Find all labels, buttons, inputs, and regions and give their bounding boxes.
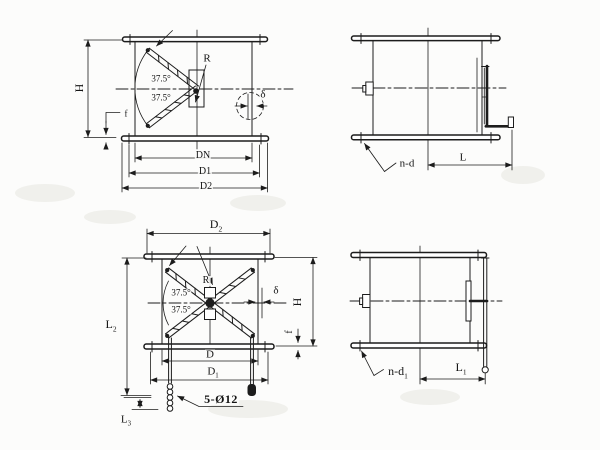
label-delta-sq: δ <box>272 286 279 297</box>
drawing-canvas <box>0 0 600 450</box>
bolt-holes-leader <box>365 144 397 172</box>
view-round-damper-side <box>352 28 514 172</box>
label-radius-sq: R <box>202 276 211 286</box>
label-angle-upper: 37.5° <box>150 75 171 84</box>
label-l: L <box>459 153 468 164</box>
hub-pin <box>205 298 214 307</box>
label-l2: L2 <box>104 318 117 330</box>
label-radius: R <box>202 54 211 65</box>
label-n-d: n-d <box>399 159 416 170</box>
shaft-end-sq <box>363 295 370 308</box>
label-d: D <box>205 350 215 361</box>
label-f-sq: f <box>285 329 295 334</box>
label-d2-sq: D2 <box>209 218 223 230</box>
blade-upper <box>146 48 198 90</box>
label-d1: D1 <box>198 167 212 177</box>
label-holes: 5-Ø12 <box>203 393 239 405</box>
dim-f-leader <box>106 113 120 124</box>
blade-swing-arc <box>135 50 148 126</box>
shaft-end <box>366 82 373 95</box>
label-dn: DN <box>195 151 211 161</box>
label-angle-lower: 37.5° <box>150 94 171 103</box>
label-f: f <box>124 110 129 119</box>
label-angle-upper-sq: 37.5° <box>170 289 191 298</box>
hub-lower <box>205 309 216 320</box>
label-angle-lower-sq: 37.5° <box>170 306 191 315</box>
handle-bracket <box>482 66 514 128</box>
label-h-sq: H <box>291 297 303 308</box>
view-square-damper-front <box>121 229 317 411</box>
engineering-drawing: H f 37.5° 37.5° R δ DN D1 D2 n-d L D2 L2… <box>0 0 600 450</box>
hub-upper <box>205 288 216 299</box>
label-n-d1: n-d1 <box>387 365 409 377</box>
label-l1: L1 <box>454 361 467 373</box>
label-h: H <box>73 83 85 94</box>
label-d2: D2 <box>199 182 213 192</box>
view-square-damper-side <box>350 246 502 384</box>
control-rod <box>482 258 490 373</box>
label-d1-sq: D1 <box>206 367 219 378</box>
bolt-holes-leader-sq <box>362 351 384 376</box>
label-l3: L3 <box>120 415 132 426</box>
view-round-damper-front <box>84 30 293 192</box>
label-delta: δ <box>259 90 266 101</box>
